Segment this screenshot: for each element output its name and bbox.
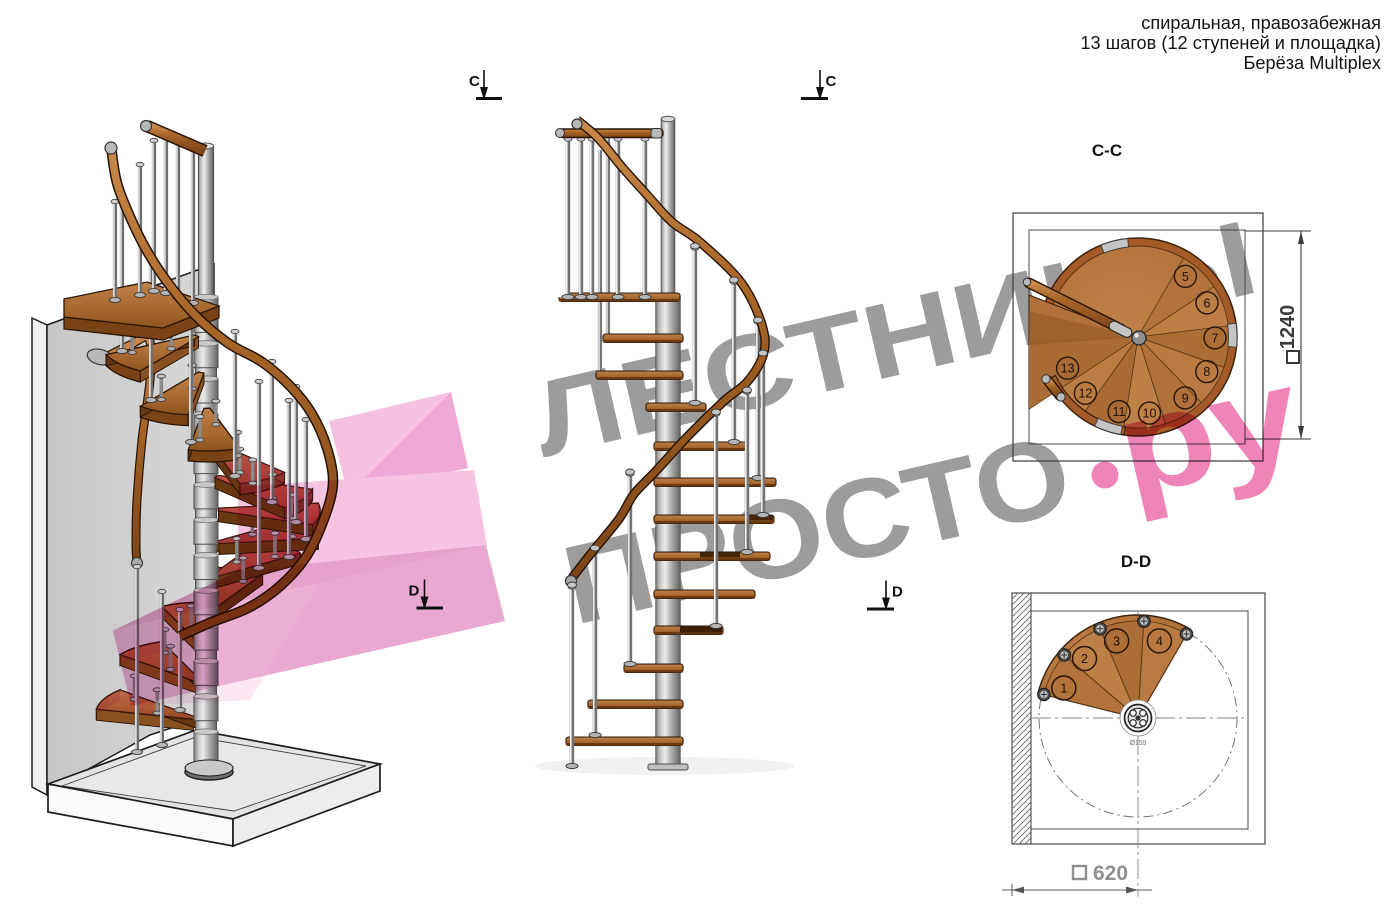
svg-text:C: C: [469, 73, 480, 90]
svg-text:Берёза Multiplex: Берёза Multiplex: [1243, 53, 1381, 73]
svg-text:D: D: [892, 584, 903, 601]
svg-text:Ø159: Ø159: [1129, 740, 1146, 747]
svg-text:C: C: [826, 73, 837, 90]
svg-text:3: 3: [1113, 634, 1120, 648]
svg-text:D-D: D-D: [1121, 552, 1151, 571]
svg-text:13: 13: [1061, 362, 1075, 376]
svg-text:C-C: C-C: [1092, 141, 1122, 160]
svg-text:2: 2: [1081, 652, 1088, 666]
svg-text:6: 6: [1204, 296, 1211, 310]
svg-text:13 шагов (12 ступеней и площад: 13 шагов (12 ступеней и площадка): [1080, 33, 1381, 53]
svg-text:7: 7: [1212, 331, 1219, 345]
svg-text:4: 4: [1156, 634, 1163, 648]
svg-text:620: 620: [1093, 862, 1128, 885]
svg-text:1: 1: [1060, 682, 1067, 696]
svg-text:спиральная, правозабежная: спиральная, правозабежная: [1141, 13, 1381, 33]
svg-text:12: 12: [1078, 387, 1092, 401]
svg-text:5: 5: [1182, 270, 1189, 284]
